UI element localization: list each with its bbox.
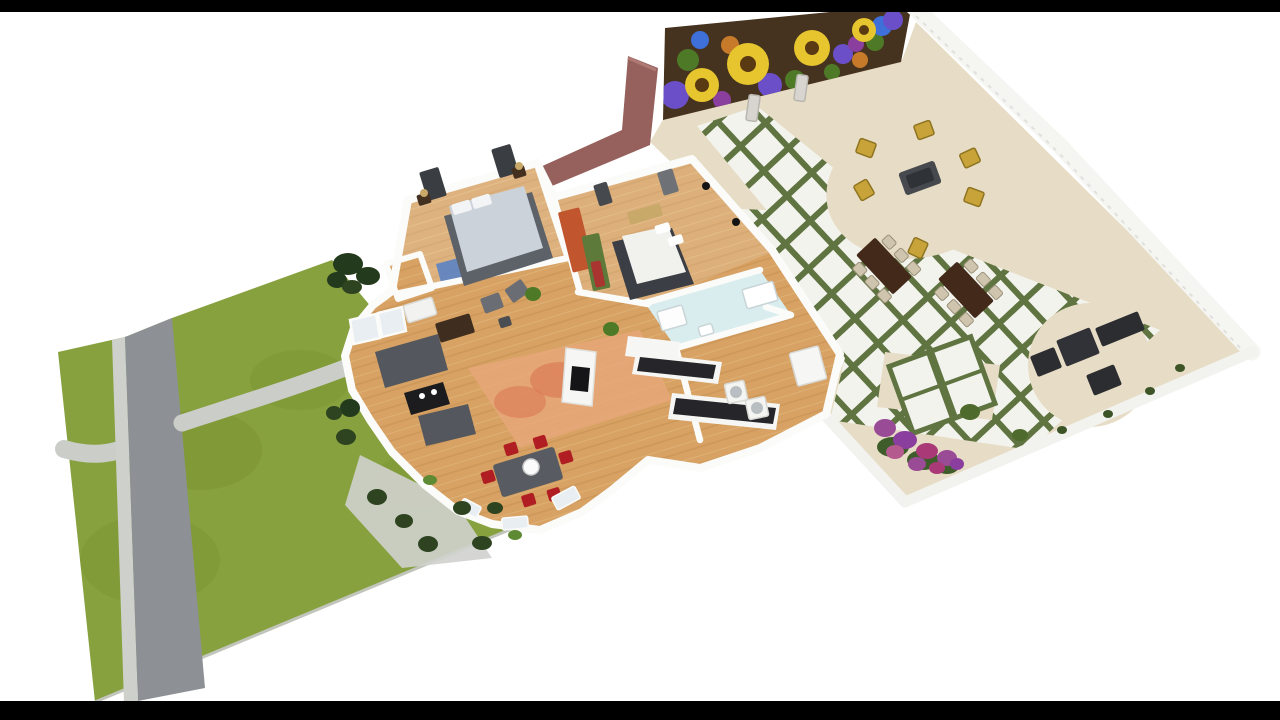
garden-bush xyxy=(342,280,362,294)
mural-purple-flower xyxy=(661,81,689,109)
garden-shrub-bright xyxy=(423,475,437,485)
patio-shrub xyxy=(1012,429,1028,441)
mural-sunflower-center xyxy=(805,41,819,55)
garden-shrub xyxy=(487,502,503,514)
flower-cluster xyxy=(886,445,904,459)
mural-blue-flower xyxy=(691,31,709,49)
patio-shrub xyxy=(960,404,980,420)
garden-bush xyxy=(326,406,342,420)
flower-cluster xyxy=(950,458,964,470)
washer-door-icon xyxy=(730,386,742,398)
garden-shrub-bright xyxy=(508,530,522,540)
garden-bush xyxy=(356,267,380,285)
mural-sunflower-center xyxy=(859,25,869,35)
flower-cluster xyxy=(929,462,945,474)
garden-shrub xyxy=(418,536,438,552)
bay-window xyxy=(378,307,406,337)
pendant-light xyxy=(523,459,539,475)
lamp xyxy=(420,189,428,197)
garden-shrub xyxy=(367,489,387,505)
floorplan-screenshot xyxy=(0,0,1280,720)
bay-window xyxy=(502,516,529,530)
patio-shrub xyxy=(1145,387,1155,395)
letterbox-bottom xyxy=(0,701,1280,720)
fireplace-opening xyxy=(570,366,590,392)
mural-leaf xyxy=(677,49,699,71)
wall-speaker-icon xyxy=(732,218,740,226)
plant xyxy=(525,287,541,301)
mural-sunflower-center xyxy=(740,56,756,72)
table-dish xyxy=(431,389,437,395)
bay-window xyxy=(350,314,380,344)
rug-motif xyxy=(494,386,546,418)
flower-cluster xyxy=(874,419,896,437)
flower-cluster xyxy=(916,443,938,459)
lamp xyxy=(515,162,523,170)
plant xyxy=(603,322,619,336)
garden-shrub xyxy=(472,536,492,550)
mural-sunflower-center xyxy=(695,78,709,92)
garden-bush xyxy=(340,399,360,417)
mural-purple-flower xyxy=(883,10,903,30)
garden-shrub xyxy=(336,429,356,445)
garden-shrub xyxy=(453,501,471,515)
letterbox-top xyxy=(0,0,1280,12)
flower-cluster xyxy=(908,457,926,471)
floorplan-scene xyxy=(0,0,1280,720)
patio-shrub xyxy=(1175,364,1185,372)
wall-speaker-icon xyxy=(702,182,710,190)
table-dish xyxy=(419,393,425,399)
garden-shrub xyxy=(395,514,413,528)
patio-shrub xyxy=(1103,410,1113,418)
mural-orange xyxy=(852,52,868,68)
patio-shrub xyxy=(1057,426,1067,434)
dryer-door-icon xyxy=(751,402,763,414)
